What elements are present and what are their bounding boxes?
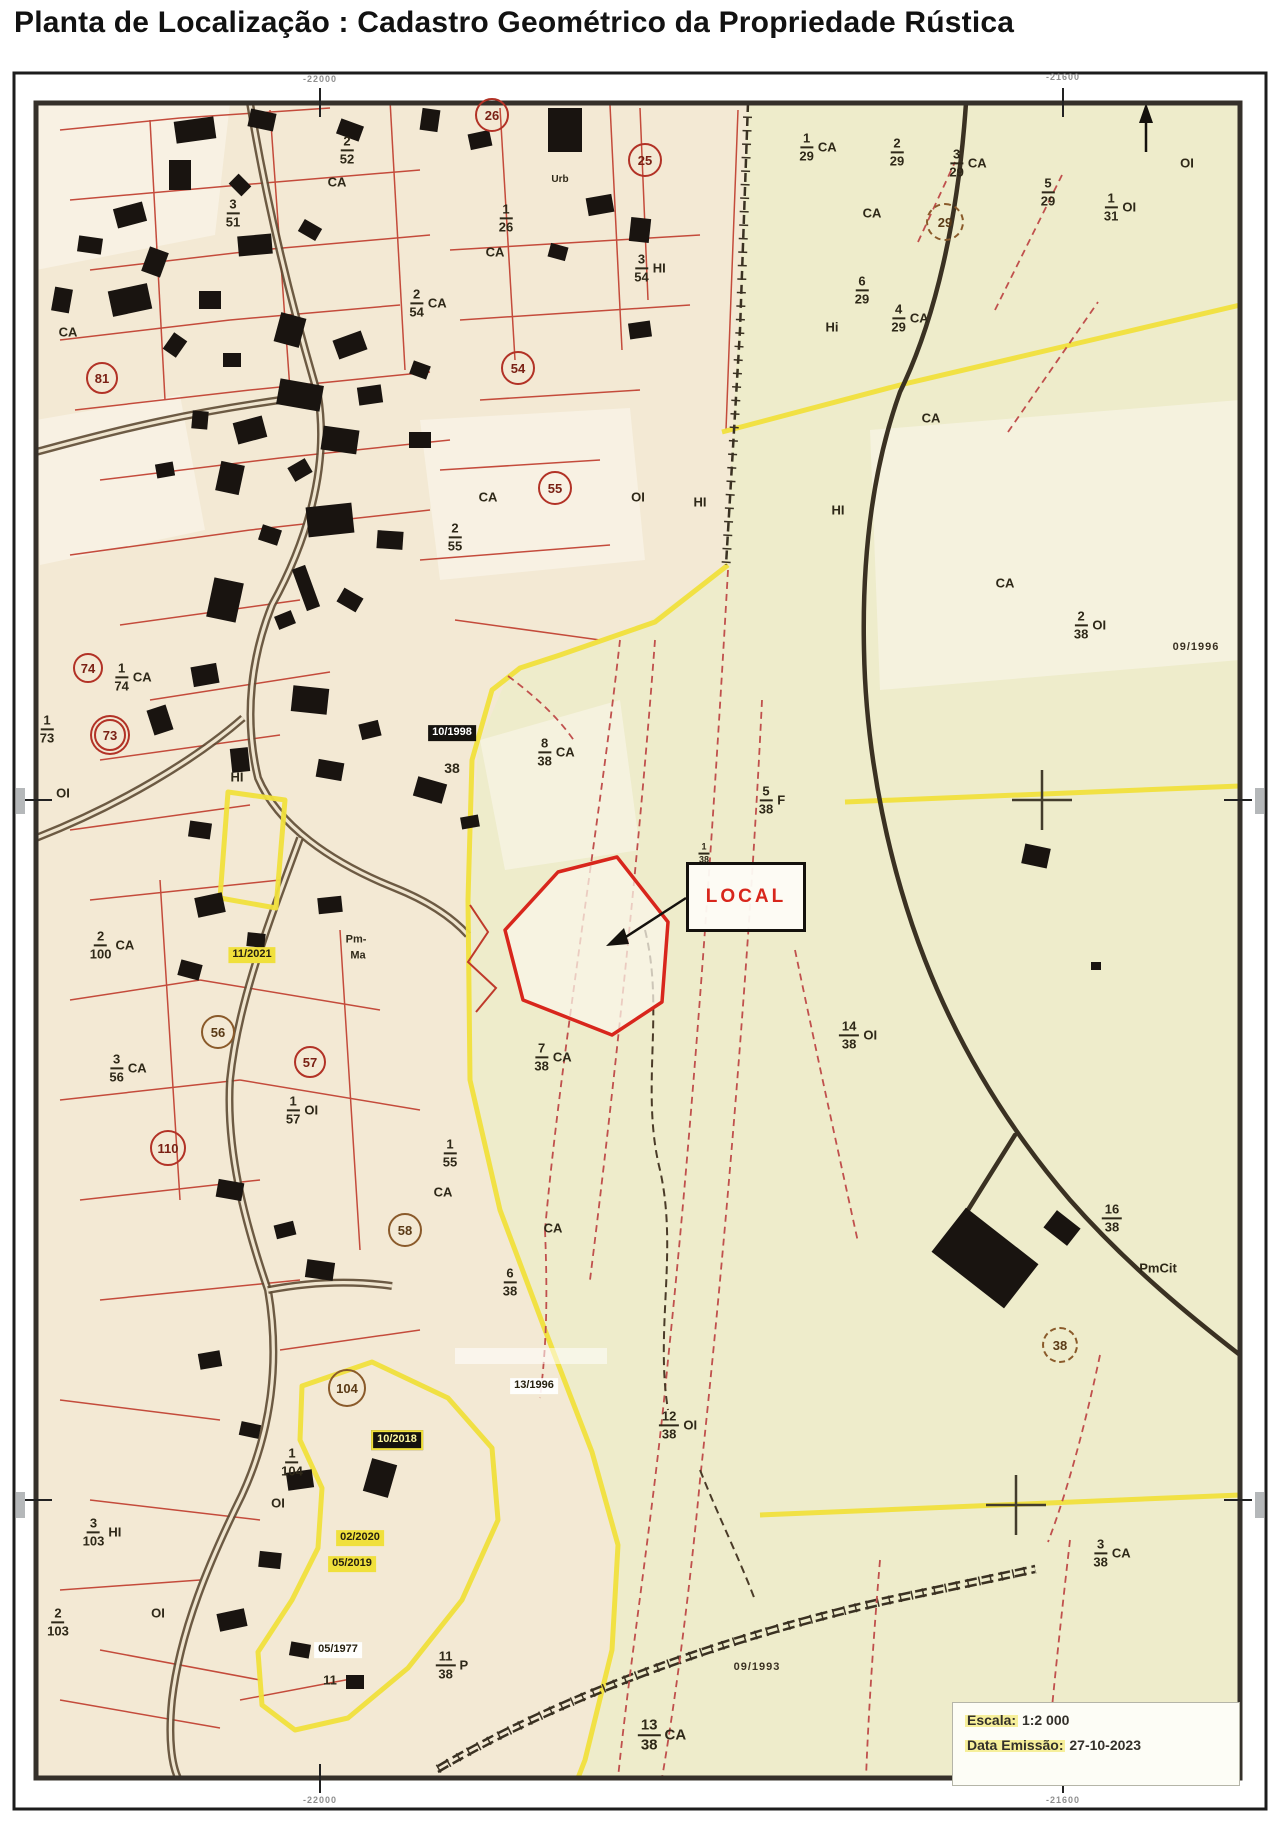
grid-coord-top-left: -22000 <box>303 74 337 84</box>
grid-coord-top-right: -21600 <box>1046 72 1080 82</box>
map-area: 252351126354HI254CA255174CA1732100CA356C… <box>0 0 1280 1823</box>
issue-date-line: Data Emissão: 27-10-2023 <box>965 1737 1227 1753</box>
scale-label: Escala: <box>965 1712 1018 1728</box>
scale-value: 1:2 000 <box>1022 1712 1069 1728</box>
scale-line: Escala: 1:2 000 <box>965 1712 1227 1728</box>
local-label: LOCAL <box>706 886 786 908</box>
issue-date-value: 27-10-2023 <box>1069 1737 1141 1753</box>
local-callout-box: LOCAL <box>686 862 806 932</box>
grid-coord-bottom-left: -22000 <box>303 1795 337 1805</box>
map-info-box: Escala: 1:2 000 Data Emissão: 27-10-2023 <box>952 1702 1240 1786</box>
page: Planta de Localização : Cadastro Geométr… <box>0 0 1280 1823</box>
map-canvas <box>0 0 1280 1823</box>
grid-coord-bottom-right: -21600 <box>1046 1795 1080 1805</box>
issue-date-label: Data Emissão: <box>965 1737 1065 1753</box>
cadastral-map-svg <box>0 0 1280 1823</box>
